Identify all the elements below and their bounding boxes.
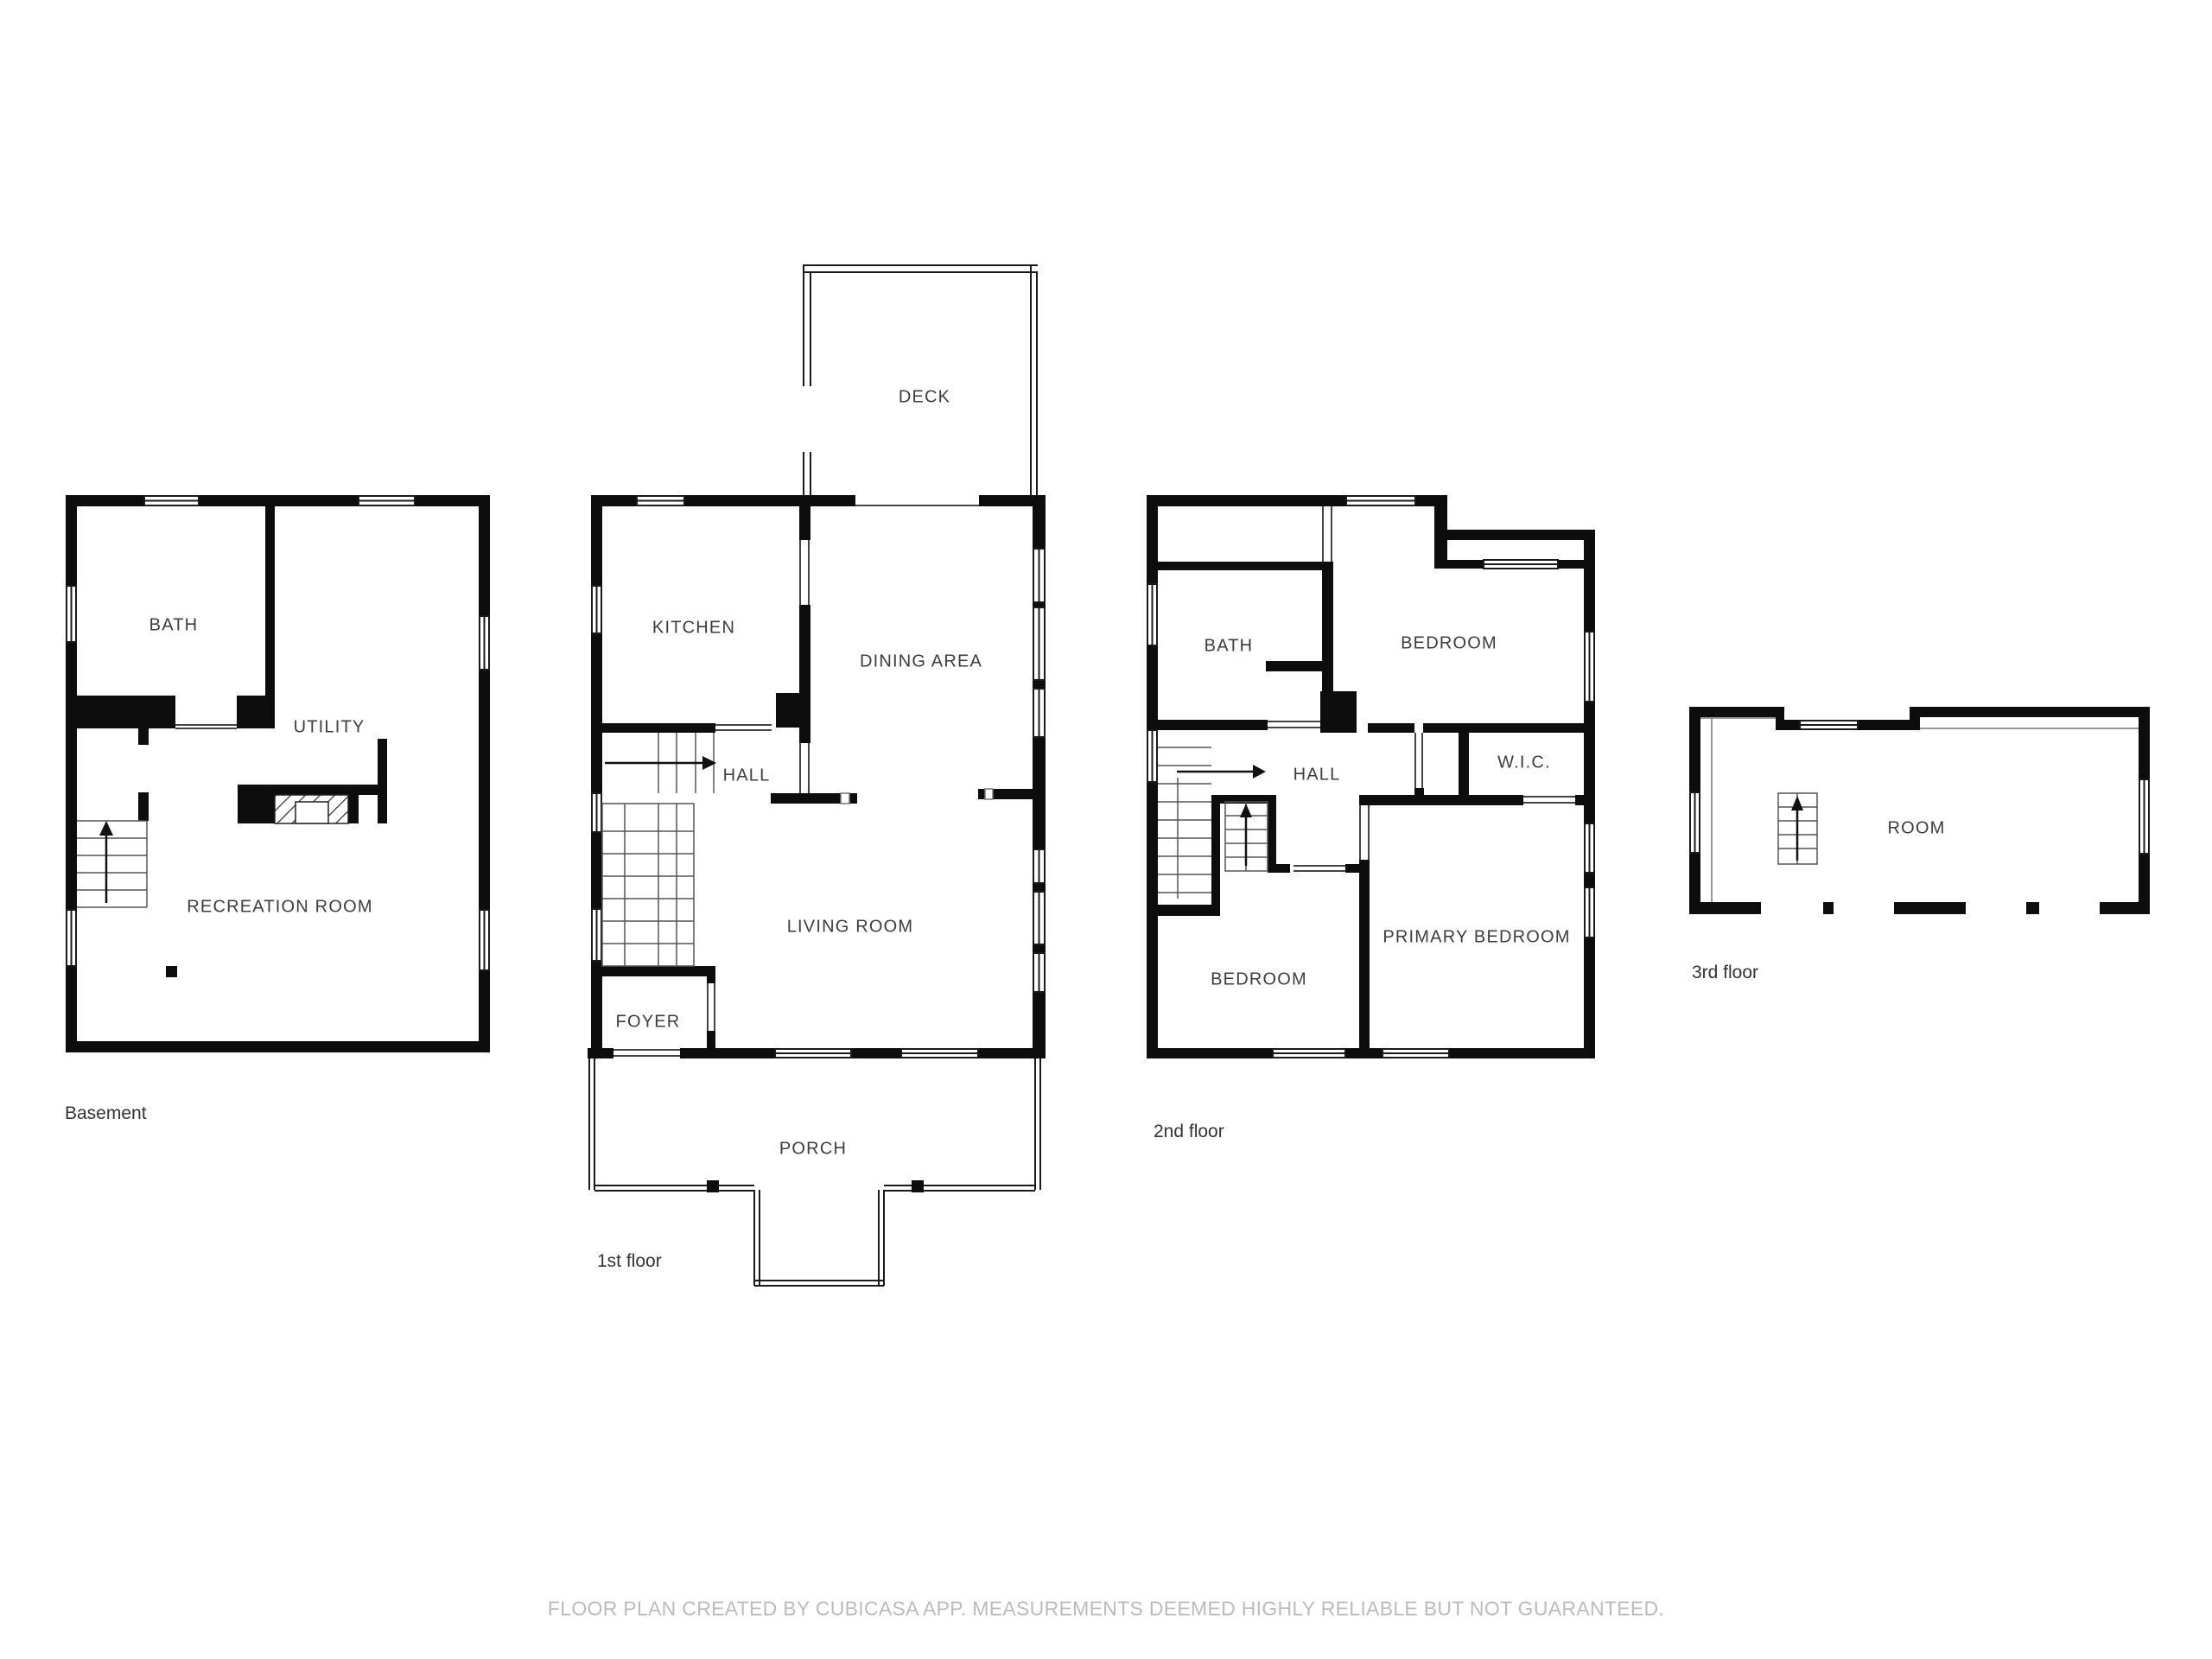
- room-label-first-living-room: LIVING ROOM: [787, 918, 914, 938]
- second-floor-stairs-up-arrow-icon: [1240, 804, 1252, 866]
- room-label-second-hall: HALL: [1294, 766, 1341, 785]
- deck-thin-walls: [803, 265, 1038, 495]
- room-label-basement-bath: BATH: [149, 616, 199, 636]
- room-label-first-dining-area: DINING AREA: [860, 652, 982, 672]
- caption-basement: Basement: [65, 1103, 147, 1124]
- room-label-basement-utility: UTILITY: [294, 718, 365, 738]
- third-floor-stairs-up-arrow-icon: [1791, 796, 1803, 861]
- room-label-second-bath: BATH: [1205, 637, 1254, 657]
- room-label-first-foyer: FOYER: [616, 1013, 681, 1033]
- caption-third-floor: 3rd floor: [1692, 963, 1758, 983]
- basement-under-stair-storage: [275, 795, 348, 823]
- basement-walls: [66, 495, 490, 1052]
- caption-first-floor: 1st floor: [597, 1251, 662, 1272]
- room-label-second-wic: W.I.C.: [1497, 753, 1551, 773]
- basement-plan: [66, 495, 490, 1052]
- basement-door-openings: [175, 725, 237, 728]
- second-floor-hall-arrow-icon: [1177, 765, 1266, 779]
- third-floor-walls: [1689, 707, 2150, 914]
- room-label-third-room: ROOM: [1887, 819, 1945, 839]
- caption-second-floor: 2nd floor: [1154, 1122, 1224, 1142]
- third-floor-plan: [1689, 707, 2150, 914]
- first-floor-walls: [588, 495, 1046, 1192]
- floor-plan-canvas: BATH UTILITY RECREATION ROOM DECK KITCHE…: [0, 0, 2212, 1659]
- first-floor-stairs-up-arrow-icon: [605, 756, 716, 770]
- room-label-first-deck: DECK: [899, 388, 950, 408]
- room-label-basement-recreation: RECREATION ROOM: [187, 898, 372, 918]
- first-floor-stairs: [602, 733, 714, 966]
- room-label-second-bedroom-bottom: BEDROOM: [1211, 970, 1307, 990]
- room-label-first-kitchen: KITCHEN: [652, 619, 735, 639]
- room-label-second-primary-bedroom: PRIMARY BEDROOM: [1382, 928, 1570, 948]
- room-label-first-porch: PORCH: [779, 1140, 847, 1160]
- third-floor-thin-lines: [1700, 718, 2139, 902]
- disclaimer-text: FLOOR PLAN CREATED BY CUBICASA APP. MEAS…: [0, 1598, 2212, 1621]
- room-label-second-bedroom-top: BEDROOM: [1401, 634, 1497, 654]
- floor-plan-drawing: [0, 0, 2212, 1659]
- first-floor-plan: [588, 265, 1046, 1286]
- room-label-first-hall: HALL: [723, 766, 771, 786]
